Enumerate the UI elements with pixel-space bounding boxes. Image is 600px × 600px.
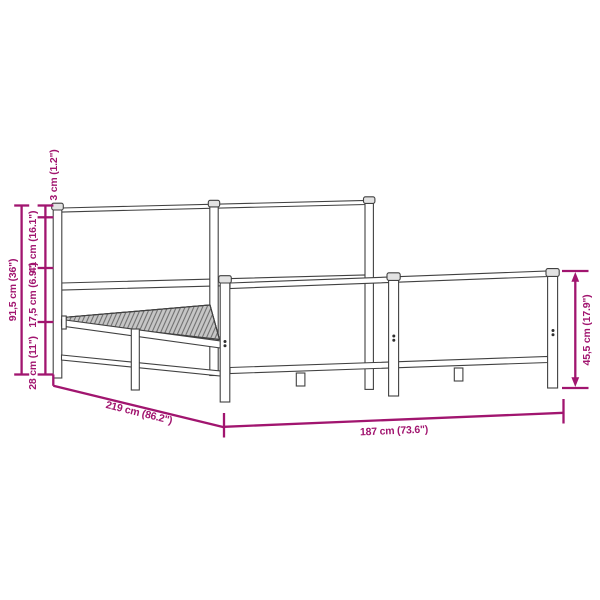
dim-bed-width [224, 399, 564, 427]
footboard-right-post [548, 276, 558, 388]
diagram-canvas: 91,5 cm (36") 3 cm (1.2") 41 cm (16.1") … [0, 0, 600, 600]
headboard-left-post [53, 210, 62, 379]
dim-stacked-heights [38, 206, 54, 375]
footboard-left-post-cap [219, 276, 232, 283]
label-bed-width: 187 cm (73.6") [360, 424, 429, 439]
lower-stretcher [62, 355, 221, 376]
label-bed-length: 219 cm (86.2") [104, 399, 173, 427]
footboard-stub-leg-left [296, 373, 305, 386]
footboard-center-post [389, 280, 399, 396]
footboard-center-post-cap [387, 273, 400, 281]
headboard-center-post-cap [208, 200, 219, 207]
footboard-right-post-cap [546, 269, 559, 277]
label-under-bed-clearance: 28 cm (11") [27, 336, 39, 390]
label-post-cap: 3 cm (1.2") [48, 149, 60, 200]
bed-frame-dimension-diagram: 91,5 cm (36") 3 cm (1.2") 41 cm (16.1") … [0, 0, 600, 600]
label-total-height: 91,5 cm (36") [7, 259, 19, 322]
support-leg [131, 329, 139, 390]
headboard-center-post [210, 207, 218, 376]
bed-frame-drawing [52, 197, 560, 402]
footboard-stub-leg-right [454, 368, 463, 381]
label-footboard-height: 45,5 cm (17.9") [581, 295, 593, 366]
headboard-right-post-cap [364, 197, 375, 204]
footboard [219, 269, 560, 402]
side-rail-bracket [62, 316, 66, 329]
headboard-right-post [365, 203, 373, 389]
headboard-left-post-cap [52, 203, 64, 210]
label-slat-to-rail: 17,5 cm (6.9") [27, 262, 39, 327]
